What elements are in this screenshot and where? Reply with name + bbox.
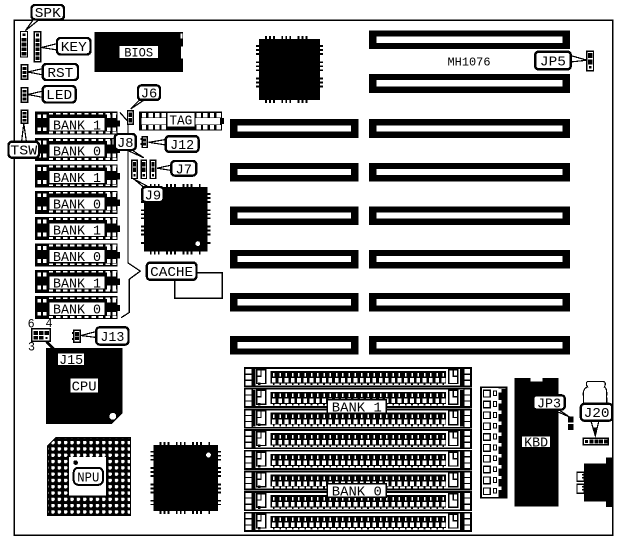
svg-text:3: 3 xyxy=(28,340,35,355)
svg-text:KBD: KBD xyxy=(524,436,548,452)
svg-text:J12: J12 xyxy=(170,138,194,154)
svg-text:BANK 1: BANK 1 xyxy=(53,276,101,292)
svg-text:BANK 0: BANK 0 xyxy=(53,303,101,319)
svg-text:J9: J9 xyxy=(145,189,162,205)
svg-text:BANK 0: BANK 0 xyxy=(53,250,101,266)
svg-text:J15: J15 xyxy=(59,353,83,369)
svg-text:CPU: CPU xyxy=(72,380,97,396)
svg-text:TSW: TSW xyxy=(10,144,38,160)
svg-text:BANK 1: BANK 1 xyxy=(53,224,101,240)
svg-text:J8: J8 xyxy=(117,136,134,152)
svg-text:BANK 0: BANK 0 xyxy=(53,197,101,213)
svg-text:BANK 1: BANK 1 xyxy=(53,171,101,187)
svg-text:KEY: KEY xyxy=(61,40,88,56)
svg-text:SPK: SPK xyxy=(35,6,62,22)
svg-text:BANK 1: BANK 1 xyxy=(332,401,382,417)
svg-text:J20: J20 xyxy=(584,406,610,422)
svg-text:BIOS: BIOS xyxy=(124,47,153,61)
svg-text:BANK 0: BANK 0 xyxy=(53,145,101,161)
svg-text:MH1076: MH1076 xyxy=(448,56,491,70)
svg-text:RST: RST xyxy=(47,66,73,82)
svg-text:BANK 0: BANK 0 xyxy=(332,484,382,500)
svg-text:LED: LED xyxy=(46,88,72,104)
svg-text:J6: J6 xyxy=(141,87,158,103)
svg-text:NPU: NPU xyxy=(77,470,99,486)
svg-text:TAG: TAG xyxy=(169,114,192,130)
svg-text:CACHE: CACHE xyxy=(150,265,193,281)
svg-text:JP3: JP3 xyxy=(537,396,561,412)
svg-text:JP5: JP5 xyxy=(540,55,566,71)
svg-text:J7: J7 xyxy=(176,162,193,178)
svg-text:4: 4 xyxy=(46,316,53,331)
svg-text:J13: J13 xyxy=(100,330,124,346)
svg-text:6: 6 xyxy=(28,317,35,332)
svg-text:BANK 1: BANK 1 xyxy=(53,118,101,134)
